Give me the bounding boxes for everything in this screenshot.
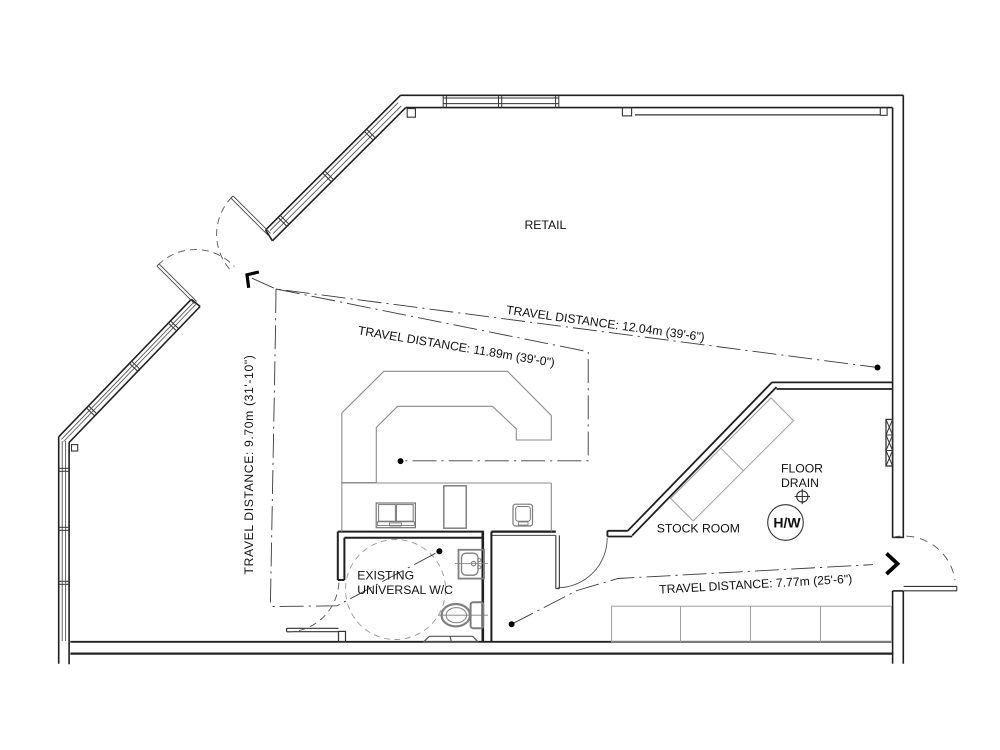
- svg-text:UNIVERSAL W/C: UNIVERSAL W/C: [357, 583, 453, 597]
- svg-text:H/W: H/W: [773, 515, 801, 531]
- svg-text:TRAVEL DISTANCE: 9.70m (31'-10: TRAVEL DISTANCE: 9.70m (31'-10"): [242, 355, 256, 575]
- svg-text:EXISTING: EXISTING: [357, 568, 414, 582]
- svg-text:RETAIL: RETAIL: [525, 218, 567, 232]
- svg-text:DRAIN: DRAIN: [781, 476, 819, 490]
- svg-text:FLOOR: FLOOR: [781, 461, 823, 475]
- svg-text:STOCK ROOM: STOCK ROOM: [657, 521, 740, 535]
